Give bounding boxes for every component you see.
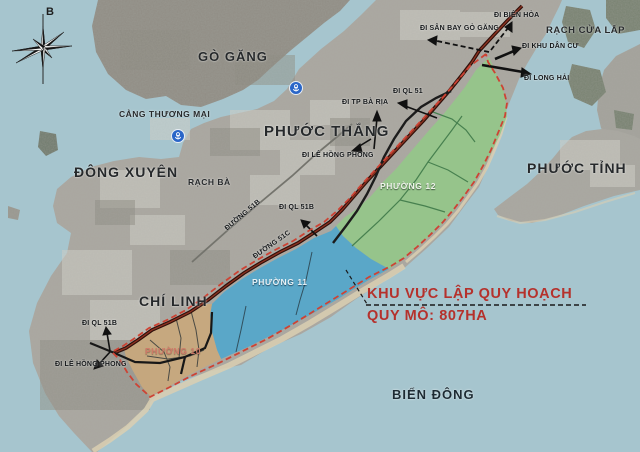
anchor-icon	[172, 130, 185, 143]
region-label-dong-xuyen: ĐÔNG XUYÊN	[74, 165, 178, 179]
direction-label-di-ql-51b-south: ĐI QL 51B	[82, 320, 117, 327]
direction-label-di-tp-ba-ria: ĐI TP BÀ RỊA	[342, 99, 388, 106]
planning-map: B GÒ GĂNG CẢNG THƯƠNG MẠI PHƯỚC THẮNG ĐÔ…	[0, 0, 640, 452]
region-label-go-gang: GÒ GĂNG	[198, 50, 268, 63]
region-label-phuoc-thang: PHƯỚC THẮNG	[264, 124, 389, 139]
region-label-chi-linh: CHÍ LINH	[139, 294, 208, 308]
zone-label-phuong-10: PHƯỜNG 10	[145, 347, 201, 356]
direction-label-di-bien-hoa: ĐI BIÊN HÒA	[494, 12, 539, 19]
anchor-icon	[290, 82, 303, 95]
region-label-rach-ba: RẠCH BÀ	[188, 178, 231, 187]
zone-label-phuong-12: PHƯỜNG 12	[380, 182, 436, 191]
direction-label-di-ql-51b: ĐI QL 51B	[279, 204, 314, 211]
annotation-scale: QUY MÔ: 807HA	[367, 308, 487, 324]
direction-label-di-le-hong-phong: ĐI LÊ HỒNG PHONG	[302, 152, 374, 159]
zone-label-phuong-11: PHƯỜNG 11	[252, 278, 308, 287]
direction-label-di-ql-51: ĐI QL 51	[393, 88, 423, 95]
region-label-phuoc-tinh: PHƯỚC TỈNH	[527, 161, 627, 175]
map-canvas	[0, 0, 640, 452]
direction-label-di-long-hai: ĐI LONG HẢI	[524, 75, 569, 82]
annotation-title: KHU VỰC LẬP QUY HOẠCH	[367, 286, 572, 302]
direction-label-di-khu-dan-cu: ĐI KHU DÂN CƯ	[522, 43, 579, 50]
water-label-rach-cua-lap: RẠCH CỬA LẤP	[546, 26, 625, 36]
direction-label-di-san-bay-go-gang: ĐI SÂN BAY GÒ GĂNG	[420, 25, 499, 32]
sea-label-bien-dong: BIỂN ĐÔNG	[392, 388, 475, 401]
direction-label-di-le-hong-phong-south: ĐI LÊ HỒNG PHONG	[55, 361, 127, 368]
region-label-cang-thuong-mai: CẢNG THƯƠNG MẠI	[119, 110, 210, 119]
compass-north-label: B	[46, 6, 54, 18]
